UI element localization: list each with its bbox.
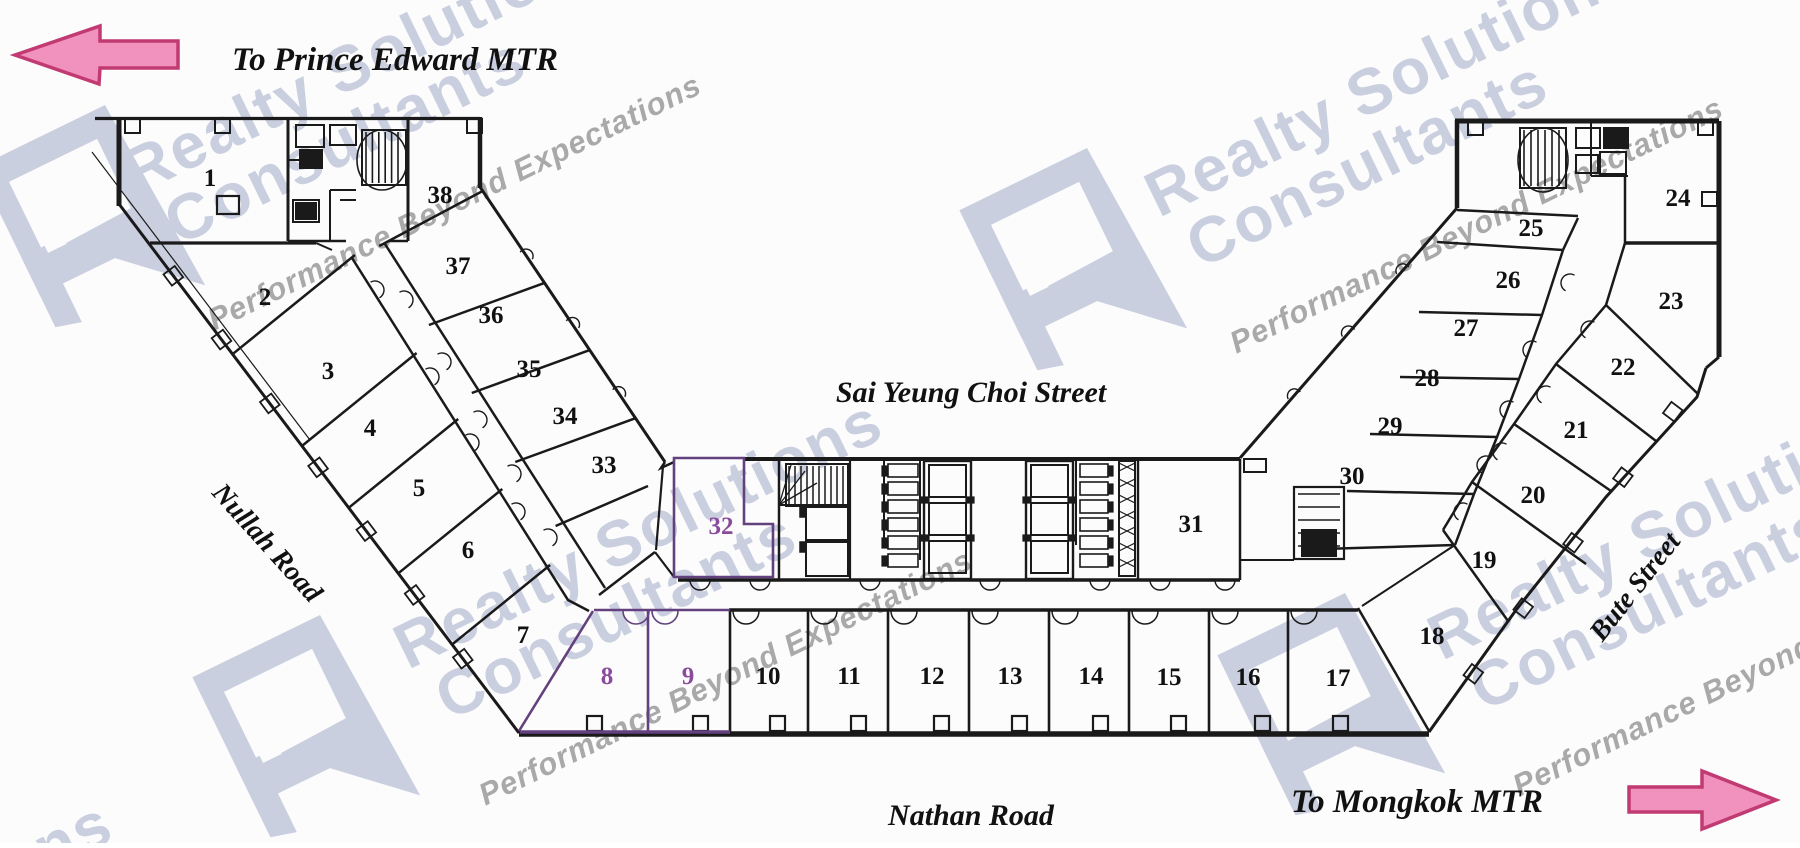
svg-text:To Mongkok MTR: To Mongkok MTR: [1291, 784, 1543, 820]
svg-text:4: 4: [364, 415, 377, 442]
svg-text:18: 18: [1420, 623, 1445, 650]
svg-text:28: 28: [1415, 365, 1440, 392]
svg-text:19: 19: [1472, 547, 1497, 574]
svg-text:13: 13: [998, 663, 1023, 690]
svg-text:11: 11: [837, 663, 861, 690]
svg-text:15: 15: [1157, 664, 1182, 691]
svg-text:7: 7: [517, 622, 530, 649]
svg-text:Nathan Road: Nathan Road: [887, 799, 1055, 832]
svg-text:25: 25: [1519, 215, 1544, 242]
svg-text:2: 2: [259, 284, 272, 311]
svg-text:30: 30: [1340, 463, 1365, 490]
svg-text:To Prince Edward MTR: To Prince Edward MTR: [232, 42, 558, 78]
svg-text:3: 3: [322, 358, 335, 385]
svg-text:37: 37: [446, 253, 471, 280]
svg-text:22: 22: [1611, 354, 1636, 381]
svg-text:36: 36: [479, 302, 504, 329]
svg-text:27: 27: [1454, 315, 1479, 342]
svg-text:34: 34: [553, 403, 579, 430]
svg-text:10: 10: [756, 663, 781, 690]
svg-text:38: 38: [428, 182, 453, 209]
svg-text:16: 16: [1236, 664, 1261, 691]
svg-text:6: 6: [462, 537, 475, 564]
svg-text:32: 32: [709, 513, 734, 540]
svg-text:29: 29: [1378, 413, 1403, 440]
svg-text:35: 35: [517, 356, 542, 383]
svg-text:14: 14: [1079, 663, 1105, 690]
svg-text:33: 33: [592, 452, 617, 479]
svg-text:20: 20: [1521, 482, 1546, 509]
svg-text:31: 31: [1179, 511, 1204, 538]
svg-text:1: 1: [204, 165, 217, 192]
svg-text:26: 26: [1496, 267, 1521, 294]
svg-text:24: 24: [1666, 185, 1692, 212]
svg-text:5: 5: [413, 475, 426, 502]
svg-text:23: 23: [1659, 288, 1684, 315]
svg-text:9: 9: [682, 663, 695, 690]
svg-text:12: 12: [920, 663, 945, 690]
svg-text:8: 8: [601, 663, 614, 690]
svg-text:Sai Yeung Choi Street: Sai Yeung Choi Street: [836, 376, 1108, 409]
svg-text:17: 17: [1326, 665, 1351, 692]
svg-text:21: 21: [1564, 417, 1589, 444]
